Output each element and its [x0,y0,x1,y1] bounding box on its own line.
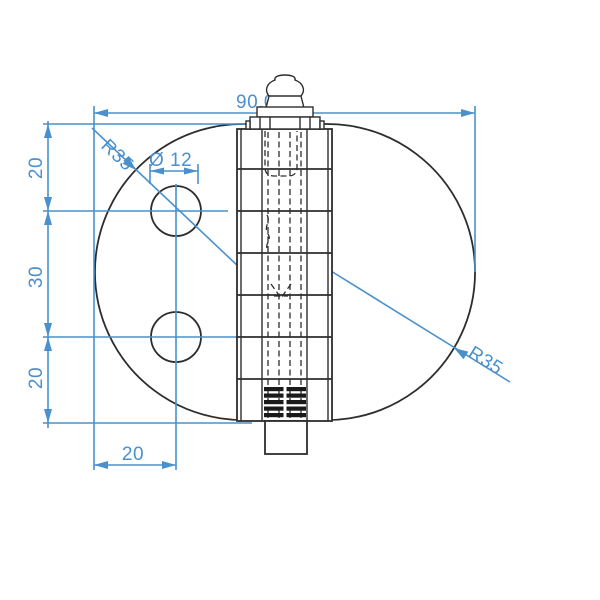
thread-bar [287,387,307,391]
thread-bar [287,407,307,411]
radius-right-label: R35 [464,342,506,379]
thread-bar [264,413,284,417]
chain-arrow-mid2-up [44,337,52,351]
radius-left-label: R35 [97,135,138,175]
chain-arrow-mid2-down [44,323,52,337]
chain-arrow-top-up [44,124,52,138]
hole-diameter-label: Ø 12 [149,150,192,171]
grease-fitting-ball [266,75,304,108]
hinge-barrel [237,129,332,454]
top-dim-arrow-right [461,109,475,117]
top-dim-arrow-left [94,109,108,117]
chain-arrow-mid1-up [44,211,52,225]
thread-bar [264,387,284,391]
drawing-canvas: 90,0 R35 R35 Ø 12 20 30 20 20 [0,0,600,600]
chain-arrow-bottom-down [44,409,52,423]
chain-top-label: 20 [26,157,47,179]
hinge-technical-drawing: 90,0 R35 R35 Ø 12 20 30 20 20 [0,0,600,600]
bottom-dim-arrow-right [162,461,176,469]
hex-tab-left [246,121,250,129]
chain-arrow-mid1-down [44,197,52,211]
chain-bottom-label: 20 [26,367,47,389]
thread-bar [287,394,307,398]
barrel-body [237,129,332,421]
thread-bar [287,400,307,404]
thread-bar [264,394,284,398]
bottom-dim-arrow-left [94,461,108,469]
chain-middle-label: 30 [26,266,47,288]
hex-tab-right [320,121,324,129]
bottom-offset-label: 20 [122,444,144,465]
thread-bar [287,413,307,417]
pin-tail [265,421,307,454]
thread-bar [264,400,284,404]
thread-bar [264,407,284,411]
grease-fitting-step [257,107,313,117]
